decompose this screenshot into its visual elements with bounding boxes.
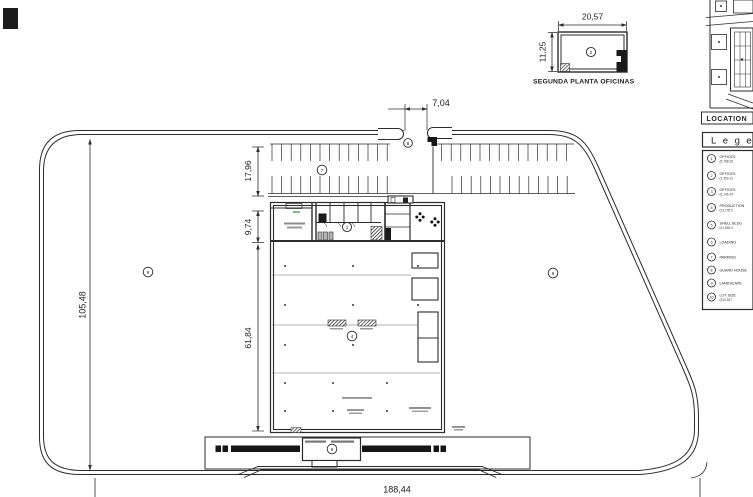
legend-item: 7 PARKING bbox=[708, 253, 736, 261]
marker-parking-num: 7 bbox=[321, 168, 324, 173]
legend-item: 4 PRODUCTION (23,705.0 bbox=[708, 204, 745, 213]
legend-item: 10 LOT SIZE (220,527 bbox=[708, 293, 737, 302]
micro-text-smear bbox=[452, 426, 465, 428]
legend-item-label: SHELL BLDG bbox=[720, 222, 743, 226]
legend-panel: Legend 1 OFFICES (5,788.28 2 OFFICES (2,… bbox=[703, 133, 753, 310]
hall-room bbox=[412, 253, 438, 268]
wc-fixture bbox=[318, 232, 322, 240]
building bbox=[271, 196, 445, 433]
parking-row1-stalls bbox=[272, 144, 566, 161]
marker-landscape-left: 9 bbox=[143, 267, 153, 277]
entrance bbox=[378, 128, 452, 194]
legend-item-area: (41,865.4 bbox=[720, 226, 734, 230]
map-dot bbox=[718, 76, 720, 78]
map-road-diagonal bbox=[726, 94, 753, 109]
location-map: LOCATION bbox=[702, 0, 753, 124]
marker-guard-num: 8 bbox=[407, 141, 410, 146]
legend-item-area: (5,788.28 bbox=[720, 160, 734, 164]
legend-item-num: 2 bbox=[710, 174, 712, 178]
patio-plant-icon bbox=[430, 217, 439, 226]
hall-room bbox=[412, 278, 438, 300]
micro-text-smear bbox=[342, 397, 372, 399]
micro-text-smear bbox=[454, 429, 463, 431]
plan-markers: 1 4 6 7 8 9 9 bbox=[143, 139, 558, 454]
mezzanine-bar bbox=[328, 320, 346, 326]
marker-loading-num: 6 bbox=[331, 447, 334, 452]
legend-item-num: 10 bbox=[709, 296, 713, 300]
micro-text-smear bbox=[347, 409, 364, 411]
legend-item-num: 1 bbox=[710, 157, 712, 161]
micro-text-smear bbox=[330, 328, 343, 330]
micro-text-smear bbox=[305, 441, 326, 443]
legend-item-area: (6,146.45 bbox=[720, 193, 734, 197]
detail-stairs-notch bbox=[617, 56, 622, 62]
legend-item-label: OFFICES bbox=[720, 188, 737, 192]
wc-fixture bbox=[324, 232, 328, 240]
legend-item-label: OFFICES bbox=[720, 172, 737, 176]
second-floor-detail: 2 20,57 11,25 SEGUNDA PLANTA OFICINAS bbox=[533, 12, 635, 86]
lot-boundary-outer bbox=[40, 131, 699, 475]
dim-detail-height-text: 11,25 bbox=[538, 41, 548, 62]
marker-offices-num: 1 bbox=[346, 225, 349, 230]
truck-court bbox=[205, 437, 530, 469]
dock-pad bbox=[291, 428, 301, 433]
dim-entrance-text: 7,04 bbox=[432, 98, 450, 108]
mezzanine-bar bbox=[358, 320, 376, 326]
parking-row2-stalls bbox=[272, 176, 567, 194]
legend-item-label: LANDSCAPE bbox=[720, 282, 743, 286]
legend-item: 5 SHELL BLDG (41,865.4 bbox=[708, 221, 743, 230]
dim-entrance: 7,04 bbox=[388, 98, 450, 131]
legend-item: 6 LOADING bbox=[708, 238, 737, 246]
dim-hall-depth: 61,84 bbox=[243, 245, 264, 432]
marker-offices-second: 2 bbox=[586, 47, 595, 56]
dim-parking-text: 17,96 bbox=[243, 160, 253, 182]
dim-lot-width: 188,44 bbox=[95, 478, 700, 497]
dock-ramp bbox=[312, 461, 337, 468]
guard-house-notch bbox=[428, 142, 432, 146]
marker-guard: 8 bbox=[404, 139, 413, 148]
dim-office-text: 9,74 bbox=[243, 218, 253, 235]
legend-item-num: 8 bbox=[710, 269, 712, 273]
legend-item: 2 OFFICES (2,359.10 bbox=[708, 172, 737, 181]
legend-item-label: PARKING bbox=[720, 256, 736, 260]
dim-lot-height: 105,48 bbox=[78, 140, 91, 471]
legend-item: 8 GUARD HOUSE bbox=[708, 266, 748, 274]
lot-boundary bbox=[40, 131, 708, 479]
legend-item-num: 7 bbox=[710, 256, 712, 260]
curb-return bbox=[691, 462, 707, 478]
marker-production: 4 bbox=[347, 331, 357, 341]
marker-second-floor-num: 2 bbox=[590, 50, 593, 55]
micro-text-smear bbox=[287, 227, 302, 229]
elevator-shaft bbox=[319, 214, 327, 223]
legend-item-area: (23,705.0 bbox=[720, 209, 734, 213]
entrance-island-right bbox=[428, 128, 453, 139]
legend-item-label: LOADING bbox=[720, 241, 737, 245]
wc-fixture bbox=[329, 232, 333, 240]
dim-lot-width-text: 188,44 bbox=[383, 485, 411, 495]
legend-item-num: 5 bbox=[710, 224, 712, 228]
hall-room bbox=[418, 312, 438, 362]
micro-text-smear bbox=[284, 223, 305, 225]
marker-landscape-left-num: 9 bbox=[147, 270, 150, 275]
micro-text-smear bbox=[409, 407, 431, 409]
marker-loading: 6 bbox=[327, 444, 337, 454]
room-dividers bbox=[385, 214, 410, 227]
legend-item: 9 LANDSCAPE bbox=[708, 279, 743, 287]
marker-landscape-right-num: 9 bbox=[552, 271, 555, 276]
legend-item: 3 OFFICES (6,146.45 bbox=[708, 188, 737, 197]
map-dot bbox=[741, 58, 743, 60]
driveway-apron bbox=[238, 467, 502, 478]
legend-item-label: GUARD HOUSE bbox=[720, 269, 748, 273]
dim-office-depth: 9,74 bbox=[243, 211, 264, 243]
stairs-core bbox=[386, 228, 392, 240]
marker-production-num: 4 bbox=[351, 334, 354, 339]
loading-dock bbox=[205, 437, 530, 469]
legend-item: 1 OFFICES (5,788.28 bbox=[708, 155, 737, 164]
map-label: LOCATION bbox=[707, 116, 748, 123]
sheet-corner-artifact bbox=[3, 8, 18, 29]
micro-text-smear bbox=[360, 328, 373, 330]
map-block bbox=[734, 0, 753, 13]
legend-item-area: (2,359.10 bbox=[720, 177, 734, 181]
marker-offices: 1 bbox=[342, 222, 351, 231]
building-wall-inner bbox=[274, 206, 442, 430]
production-hall bbox=[272, 253, 440, 433]
entrance-island-left bbox=[378, 129, 404, 140]
dim-detail-width-text: 20,57 bbox=[582, 12, 604, 22]
legend-item-num: 4 bbox=[710, 206, 712, 210]
legend-item-num: 6 bbox=[710, 241, 712, 245]
map-road bbox=[706, 14, 753, 26]
dim-lot-height-text: 105,48 bbox=[78, 291, 88, 319]
parking-area bbox=[268, 144, 575, 197]
map-dot bbox=[718, 41, 720, 43]
dim-hall-text: 61,84 bbox=[243, 327, 253, 349]
site-plan-drawing: 105,48 17,96 9,74 61,84 7,04 188,44 bbox=[0, 0, 753, 497]
dim-detail-width: 20,57 bbox=[559, 12, 627, 32]
map-border bbox=[710, 0, 753, 108]
micro-text-smear bbox=[412, 411, 428, 413]
legend-item-num: 9 bbox=[710, 282, 712, 286]
dim-parking-depth: 17,96 bbox=[243, 147, 264, 196]
legend-item-label: PRODUCTION bbox=[720, 204, 745, 208]
micro-text-smear bbox=[331, 441, 354, 443]
map-dot bbox=[720, 5, 722, 7]
cad-sheet: 105,48 17,96 9,74 61,84 7,04 188,44 bbox=[0, 0, 753, 497]
legend-item-label: LOT SIZE bbox=[720, 294, 737, 298]
restroom-bump bbox=[388, 196, 413, 203]
lot-boundary-inner bbox=[44, 135, 695, 471]
patio-plant-icon bbox=[415, 212, 424, 221]
marker-parking: 7 bbox=[317, 165, 327, 175]
office-area bbox=[271, 203, 444, 241]
legend-title: Legend bbox=[711, 136, 753, 147]
bump-fixture bbox=[403, 198, 408, 203]
dim-detail-height: 11,25 bbox=[538, 33, 558, 72]
legend-item-label: OFFICES bbox=[720, 155, 737, 159]
micro-text-smear bbox=[349, 413, 362, 415]
legend-item-num: 3 bbox=[710, 190, 712, 194]
floor-joints bbox=[272, 275, 440, 373]
detail-title: SEGUNDA PLANTA OFICINAS bbox=[533, 79, 635, 86]
legend-item-area: (220,527 bbox=[720, 298, 733, 302]
stairs bbox=[371, 227, 382, 241]
marker-landscape-right: 9 bbox=[548, 268, 558, 278]
detail-stairs bbox=[561, 64, 570, 72]
